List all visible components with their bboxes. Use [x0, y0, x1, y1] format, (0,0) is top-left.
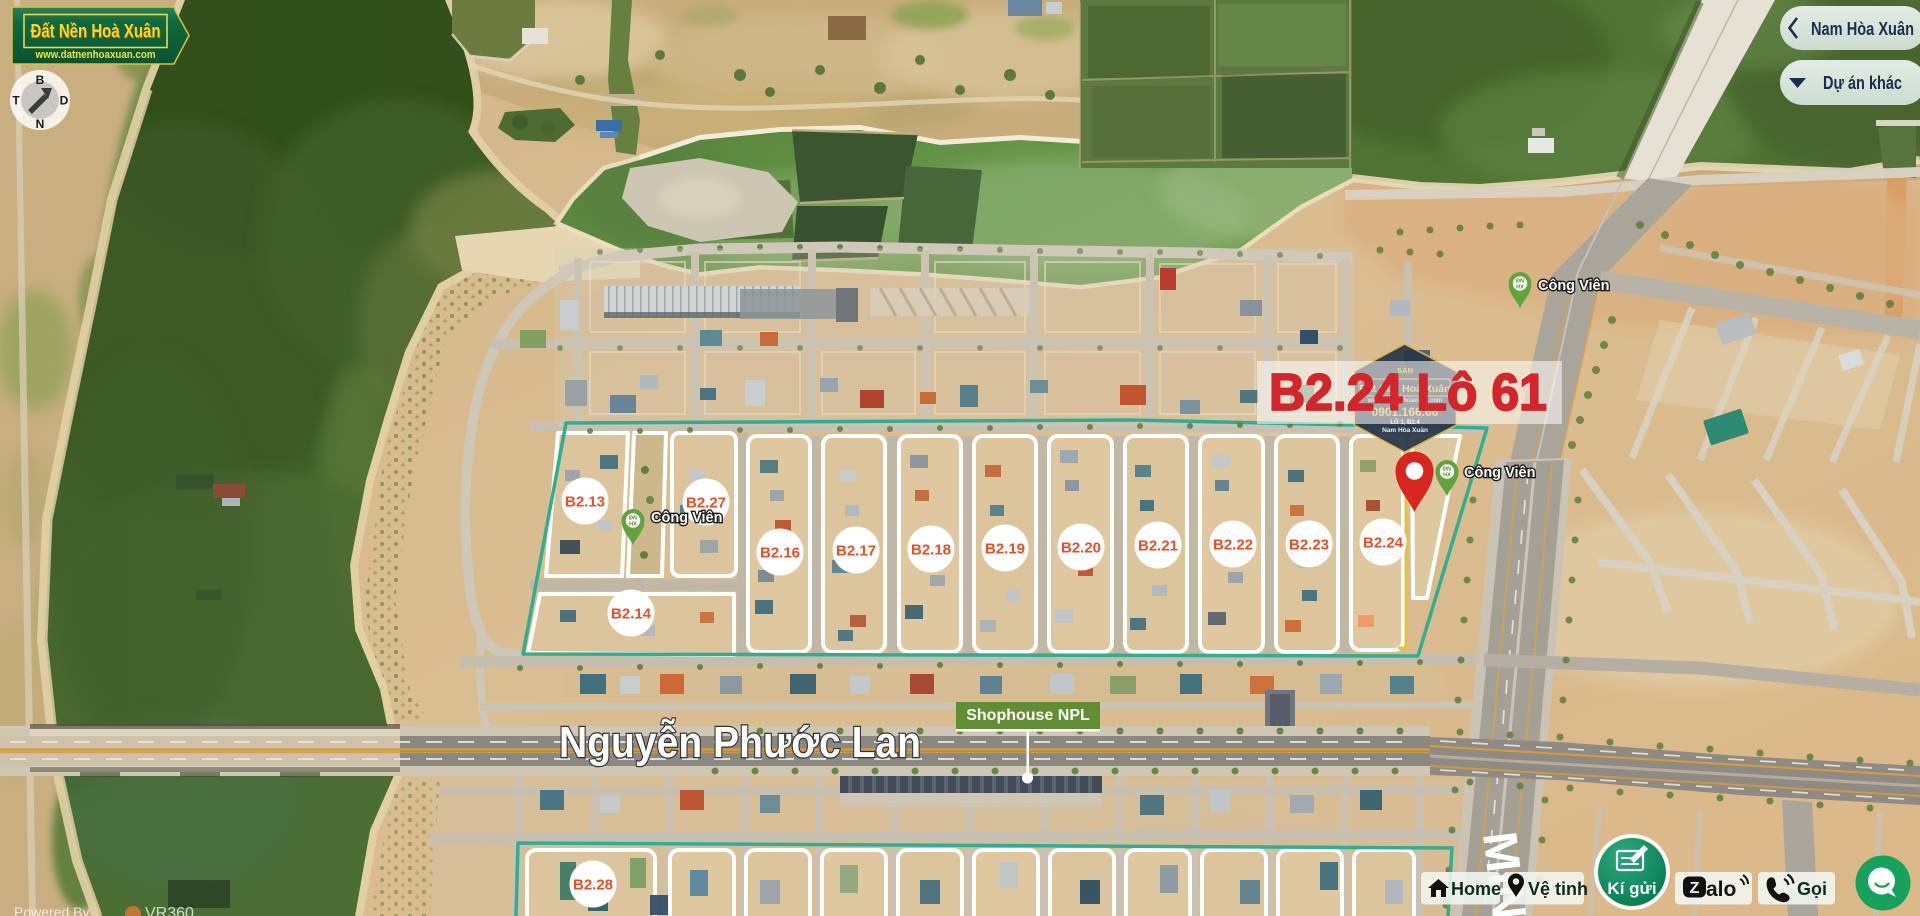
- svg-text:Shophouse NPL: Shophouse NPL: [966, 707, 1090, 724]
- svg-text:Dự án khác: Dự án khác: [1823, 73, 1902, 93]
- svg-text:HX: HX: [1516, 285, 1524, 291]
- svg-text:B2.27: B2.27: [686, 495, 726, 512]
- svg-text:B2.21: B2.21: [1138, 538, 1178, 555]
- svg-text:Công Viên: Công Viên: [1538, 278, 1609, 294]
- svg-text:VR360: VR360: [145, 905, 194, 916]
- svg-text:HX: HX: [629, 522, 637, 528]
- svg-text:www.datnenhoaxuan.com: www.datnenhoaxuan.com: [35, 49, 156, 61]
- svg-text:T: T: [12, 94, 20, 108]
- svg-text:B: B: [36, 73, 45, 87]
- svg-text:Công Viên: Công Viên: [1464, 465, 1535, 481]
- svg-text:B2.20: B2.20: [1061, 540, 1101, 557]
- svg-text:D: D: [60, 94, 69, 108]
- svg-text:Gọi: Gọi: [1797, 879, 1827, 899]
- svg-text:B2.16: B2.16: [760, 545, 800, 562]
- svg-text:Đất Nền Hoà Xuân: Đất Nền Hoà Xuân: [31, 22, 161, 43]
- svg-text:Nguyễn Phước Lan: Nguyễn Phước Lan: [559, 717, 921, 767]
- svg-text:HX: HX: [1443, 473, 1451, 479]
- svg-text:Công Viên: Công Viên: [651, 510, 722, 526]
- svg-text:B2.18: B2.18: [911, 542, 951, 559]
- svg-text:Z: Z: [1690, 880, 1700, 897]
- svg-text:B2.24 Lô 61: B2.24 Lô 61: [1269, 364, 1547, 422]
- svg-text:N: N: [36, 117, 45, 131]
- svg-text:Powered By: Powered By: [14, 904, 89, 916]
- svg-text:B2.28: B2.28: [573, 877, 613, 894]
- svg-text:Nam Hòa Xuân: Nam Hòa Xuân: [1811, 19, 1914, 39]
- svg-text:alo: alo: [1706, 878, 1736, 901]
- svg-text:Vệ tinh: Vệ tinh: [1528, 879, 1588, 899]
- svg-text:Kí gửi: Kí gửi: [1607, 879, 1656, 898]
- svg-text:Nam Hòa Xuân: Nam Hòa Xuân: [1382, 427, 1428, 434]
- svg-text:B2.14: B2.14: [611, 606, 652, 623]
- svg-text:B2.19: B2.19: [985, 541, 1025, 558]
- svg-text:B2.23: B2.23: [1289, 537, 1329, 554]
- svg-text:B2.24: B2.24: [1363, 535, 1404, 552]
- svg-text:Home: Home: [1451, 879, 1501, 899]
- svg-text:B2.13: B2.13: [565, 494, 605, 511]
- svg-text:B2.22: B2.22: [1213, 537, 1253, 554]
- svg-text:B2.17: B2.17: [836, 543, 876, 560]
